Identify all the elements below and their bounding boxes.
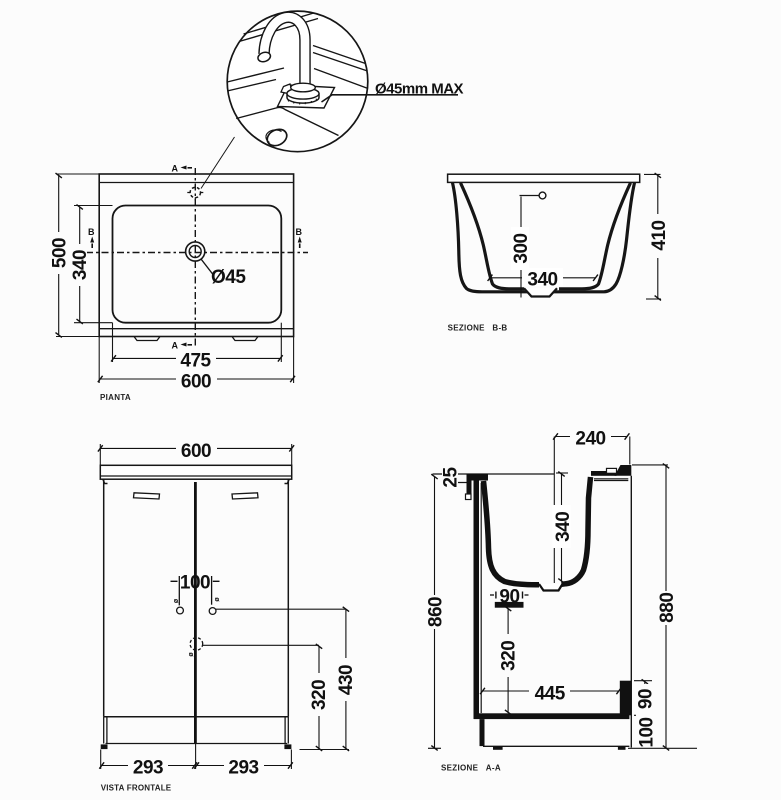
svg-text:B: B [296,227,303,237]
svg-text:880: 880 [657,593,678,623]
svg-text:B: B [88,227,95,237]
svg-text:ø: ø [173,598,180,603]
svg-text:25: 25 [441,467,462,488]
svg-text:100: 100 [180,573,210,594]
svg-text:410: 410 [649,220,670,250]
svg-text:A: A [172,164,179,174]
svg-text:320: 320 [499,641,520,671]
svg-text:ø: ø [188,652,195,657]
svg-text:340: 340 [553,512,574,542]
svg-text:475: 475 [180,351,211,372]
svg-text:ø: ø [214,597,221,602]
svg-text:293: 293 [133,758,163,779]
svg-text:300: 300 [511,233,532,263]
svg-text:500: 500 [50,238,71,268]
svg-text:100: 100 [637,717,658,747]
svg-text:Ø45: Ø45 [211,267,246,288]
svg-text:340: 340 [527,270,557,291]
svg-text:SEZIONE A-A: SEZIONE A-A [441,764,501,773]
svg-text:VISTA FRONTALE: VISTA FRONTALE [101,784,172,793]
svg-text:600: 600 [181,441,211,462]
svg-text:SEZIONE B-B: SEZIONE B-B [448,324,508,333]
svg-text:Ø45mm MAX: Ø45mm MAX [375,81,464,98]
svg-text:860: 860 [425,597,446,627]
svg-text:PIANTA: PIANTA [100,393,131,402]
svg-text:293: 293 [228,758,258,779]
svg-text:240: 240 [575,429,605,450]
svg-text:320: 320 [309,680,330,710]
svg-text:340: 340 [70,250,91,280]
svg-text:445: 445 [535,683,566,704]
svg-text:600: 600 [181,372,211,393]
svg-text:90: 90 [636,689,657,709]
svg-text:430: 430 [336,665,357,695]
